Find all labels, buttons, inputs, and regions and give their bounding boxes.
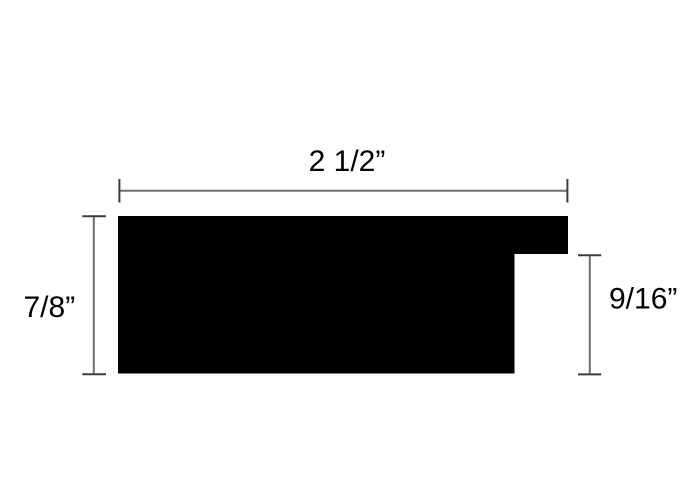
svg-text:9/16”: 9/16”	[609, 283, 677, 316]
svg-text:7/8”: 7/8”	[24, 291, 76, 324]
svg-text:2 1/2”: 2 1/2”	[309, 145, 386, 178]
